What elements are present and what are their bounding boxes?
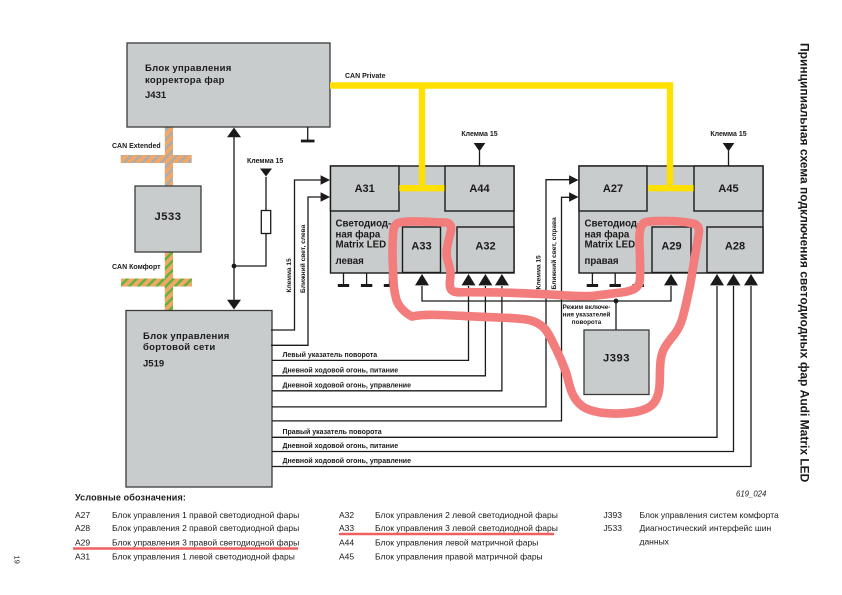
svg-text:A44: A44: [469, 183, 490, 195]
svg-text:J533: J533: [155, 211, 182, 223]
svg-text:Matrix LED: Matrix LED: [585, 239, 636, 250]
svg-text:Дневной ходовой огонь, управле: Дневной ходовой огонь, управление: [283, 381, 412, 389]
svg-text:бортовой сети: бортовой сети: [143, 342, 216, 353]
svg-text:CAN Extended: CAN Extended: [112, 143, 161, 150]
svg-text:Дневной ходовой огонь, питание: Дневной ходовой огонь, питание: [283, 366, 399, 374]
svg-text:Matrix LED: Matrix LED: [336, 239, 387, 250]
svg-text:CAN Комфорт: CAN Комфорт: [112, 264, 161, 271]
svg-text:Блок управления 1 правой свето: Блок управления 1 правой светодиодной фа…: [112, 510, 299, 520]
svg-text:J393: J393: [603, 353, 630, 365]
svg-text:Блок управления 2 левой светод: Блок управления 2 левой светодиодной фар…: [375, 510, 558, 520]
svg-text:A27: A27: [75, 510, 90, 520]
svg-text:A45: A45: [339, 552, 354, 562]
svg-text:Принципиальная схема подключен: Принципиальная схема подключения светоди…: [798, 43, 812, 483]
svg-text:Ближний свет, слева: Ближний свет, слева: [299, 224, 307, 293]
svg-text:Светодиод-: Светодиод-: [336, 219, 392, 230]
svg-text:Блок управления 3 левой светод: Блок управления 3 левой светодиодной фар…: [375, 523, 558, 533]
svg-text:Условные обозначения:: Условные обозначения:: [75, 493, 186, 503]
svg-text:Светодиод-: Светодиод-: [585, 219, 641, 230]
svg-text:A32: A32: [475, 241, 495, 253]
svg-text:Ближний свет, справа: Ближний свет, справа: [550, 217, 558, 289]
svg-text:Левый указатель поворота: Левый указатель поворота: [283, 351, 378, 359]
svg-text:619_024: 619_024: [736, 490, 767, 499]
svg-text:Блок управления систем комфорт: Блок управления систем комфорта: [640, 510, 779, 520]
svg-text:Дневной ходовой огонь, управле: Дневной ходовой огонь, управление: [283, 457, 412, 465]
svg-text:A28: A28: [75, 523, 90, 533]
svg-text:Дневной ходовой огонь, питание: Дневной ходовой огонь, питание: [283, 442, 399, 450]
svg-text:Клемма 15: Клемма 15: [710, 131, 746, 138]
svg-text:J519: J519: [143, 359, 164, 370]
svg-text:J533: J533: [604, 523, 623, 533]
svg-text:A27: A27: [603, 183, 623, 195]
svg-text:Клемма 15: Клемма 15: [461, 131, 497, 138]
svg-text:поворота: поворота: [572, 319, 602, 326]
svg-text:A33: A33: [339, 523, 354, 533]
svg-text:ния указателей: ния указателей: [563, 311, 611, 319]
svg-text:A28: A28: [725, 241, 745, 253]
svg-text:Блок управления 1 левой светод: Блок управления 1 левой светодиодной фар…: [112, 552, 295, 562]
svg-text:A33: A33: [411, 241, 431, 253]
svg-text:A31: A31: [75, 552, 90, 562]
svg-text:Клемма 15: Клемма 15: [286, 258, 293, 293]
svg-text:J431: J431: [145, 90, 167, 101]
svg-text:J393: J393: [604, 510, 623, 520]
svg-text:19: 19: [13, 556, 22, 564]
svg-text:Правый указатель поворота: Правый указатель поворота: [283, 428, 382, 436]
svg-text:Клемма 15: Клемма 15: [536, 255, 543, 290]
svg-text:Режим включе-: Режим включе-: [563, 304, 611, 311]
svg-text:A44: A44: [339, 538, 354, 548]
svg-text:A29: A29: [75, 538, 90, 548]
svg-text:Блок управления левой матрично: Блок управления левой матричной фары: [375, 538, 538, 548]
svg-text:левая: левая: [336, 256, 364, 267]
svg-text:CAN Private: CAN Private: [345, 73, 386, 80]
svg-text:Блок управления 3 правой свето: Блок управления 3 правой светодиодной фа…: [112, 538, 299, 548]
svg-text:Диагностический интерфейс шин: Диагностический интерфейс шин: [640, 523, 772, 533]
svg-text:Блок управления правой матричн: Блок управления правой матричной фары: [375, 552, 543, 562]
svg-text:правая: правая: [585, 256, 619, 267]
svg-text:A45: A45: [718, 183, 738, 195]
svg-text:A32: A32: [339, 510, 354, 520]
svg-text:данных: данных: [640, 537, 670, 547]
svg-text:Клемма 15: Клемма 15: [247, 158, 283, 165]
svg-text:Блок управления: Блок управления: [143, 331, 230, 342]
svg-text:A29: A29: [661, 241, 681, 253]
svg-text:корректора фар: корректора фар: [145, 75, 225, 86]
svg-text:Блок управления: Блок управления: [145, 63, 232, 74]
svg-text:A31: A31: [355, 183, 375, 195]
svg-text:Блок управления 2 правой свето: Блок управления 2 правой светодиодной фа…: [112, 523, 299, 533]
